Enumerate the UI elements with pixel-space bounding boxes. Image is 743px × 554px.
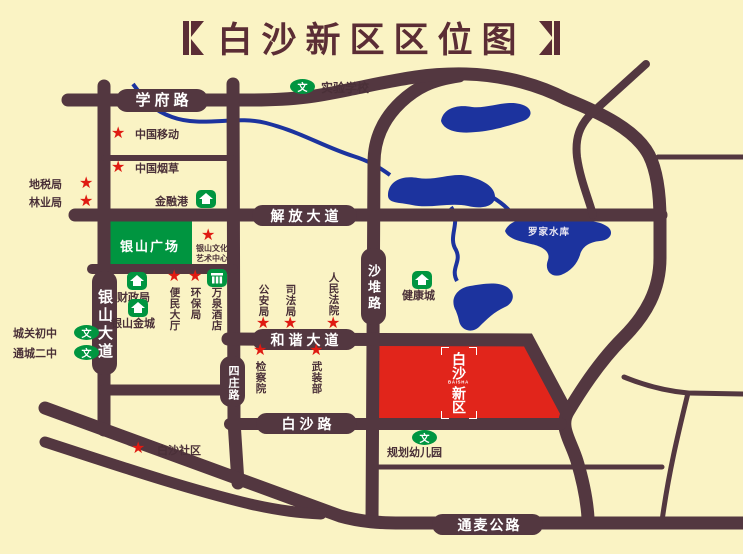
house-icon [127, 272, 147, 290]
poi-linyeju: 林业局 [29, 197, 62, 209]
poi-jinronggang: 金融港 [155, 196, 188, 208]
poi-jiankangcheng: 健康城 [402, 290, 435, 302]
star-icon: ★ [283, 316, 297, 332]
poi-huanbaoju: 环保局 [189, 287, 201, 320]
poi-zhongguo-yancao: 中国烟草 [135, 163, 179, 175]
star-icon: ★ [79, 176, 93, 192]
star-icon: ★ [111, 160, 125, 176]
yinshan-plaza-label: 银山广场 [108, 220, 192, 270]
lake-middle [388, 175, 495, 207]
star-icon: ★ [188, 269, 202, 285]
poi-wuzhuangbu: 武装部 [310, 361, 322, 394]
house-icon [412, 271, 432, 289]
poi-dishuiju: 地税局 [29, 179, 62, 191]
star-icon: ★ [201, 228, 215, 244]
road-southeast-thin-2 [662, 393, 688, 521]
star-icon: ★ [167, 269, 181, 285]
poi-tongcheng-erzhong: 通城二中 [13, 348, 57, 360]
star-icon: ★ [326, 316, 340, 332]
poi-sifaju: 司法局 [284, 284, 296, 317]
poi-chengguan-chuzhong: 城关初中 [13, 328, 57, 340]
house-icon [128, 299, 148, 317]
star-icon: ★ [253, 343, 267, 359]
road-label-baisha-lu: 白沙路 [256, 413, 357, 434]
poi-wenhua-line2: 艺术中心 [196, 255, 228, 264]
school-badge-icon: 文 [290, 79, 315, 94]
star-icon: ★ [256, 316, 270, 332]
logo-corner-br-icon [469, 411, 477, 419]
poi-jianchayuan: 检察院 [254, 361, 266, 394]
road-label-tongmai-gonglu: 通麦公路 [432, 514, 543, 535]
luojia-reservoir-label: 罗家水库 [528, 224, 570, 238]
district-logo-top: 白沙 [452, 352, 466, 380]
star-icon: ★ [131, 441, 145, 457]
star-icon: ★ [309, 343, 323, 359]
road-label-xuefu-lu: 学府路 [116, 89, 208, 112]
star-icon: ★ [111, 126, 125, 142]
district-logo-bottom: 新区 [452, 386, 466, 414]
poi-renmin-fayuan: 人民法院 [327, 272, 339, 316]
lake-north [441, 103, 531, 133]
poi-shiyan-xuexiao: 实验学校 [321, 82, 369, 95]
logo-corner-bl-icon [441, 411, 449, 419]
poi-gonganju: 公安局 [257, 284, 269, 317]
logo-corner-tr-icon [469, 347, 477, 355]
baisha-district-logo: 白沙 BAISHA 新区 [440, 347, 478, 419]
poi-yinshan-jincheng: 银山金城 [111, 318, 155, 330]
road-label-shadui-lu: 沙堆路 [361, 248, 386, 325]
road-label-sizhuang-lu: 四庄路 [220, 356, 245, 407]
poi-guihua-youeryuan: 规划幼儿园 [387, 447, 442, 459]
road-southeast-thin-1 [624, 377, 743, 394]
school-badge-icon: 文 [74, 345, 99, 360]
school-badge-icon: 文 [74, 325, 99, 340]
road-label-hexie-dadao: 和谐大道 [252, 329, 357, 350]
house-icon [196, 190, 216, 208]
school-badge-icon: 文 [412, 430, 437, 445]
poi-zhongguo-yidong: 中国移动 [135, 129, 179, 141]
location-map: 白沙新区区位图 [0, 0, 743, 554]
logo-corner-tl-icon [441, 347, 449, 355]
poi-baisha-shequ: 白沙社区 [157, 445, 201, 457]
hotel-building-icon [207, 269, 227, 287]
district-logo-latin: BAISHA [449, 381, 470, 385]
poi-wenhua-line1: 银山文化 [196, 245, 228, 254]
poi-wanquan-jiudian: 万泉酒店 [210, 287, 222, 331]
lake-south [453, 283, 512, 330]
star-icon: ★ [79, 194, 93, 210]
poi-bianmin-dating: 便民大厅 [168, 287, 180, 331]
road-label-jiefang-dadao: 解放大道 [252, 205, 357, 226]
